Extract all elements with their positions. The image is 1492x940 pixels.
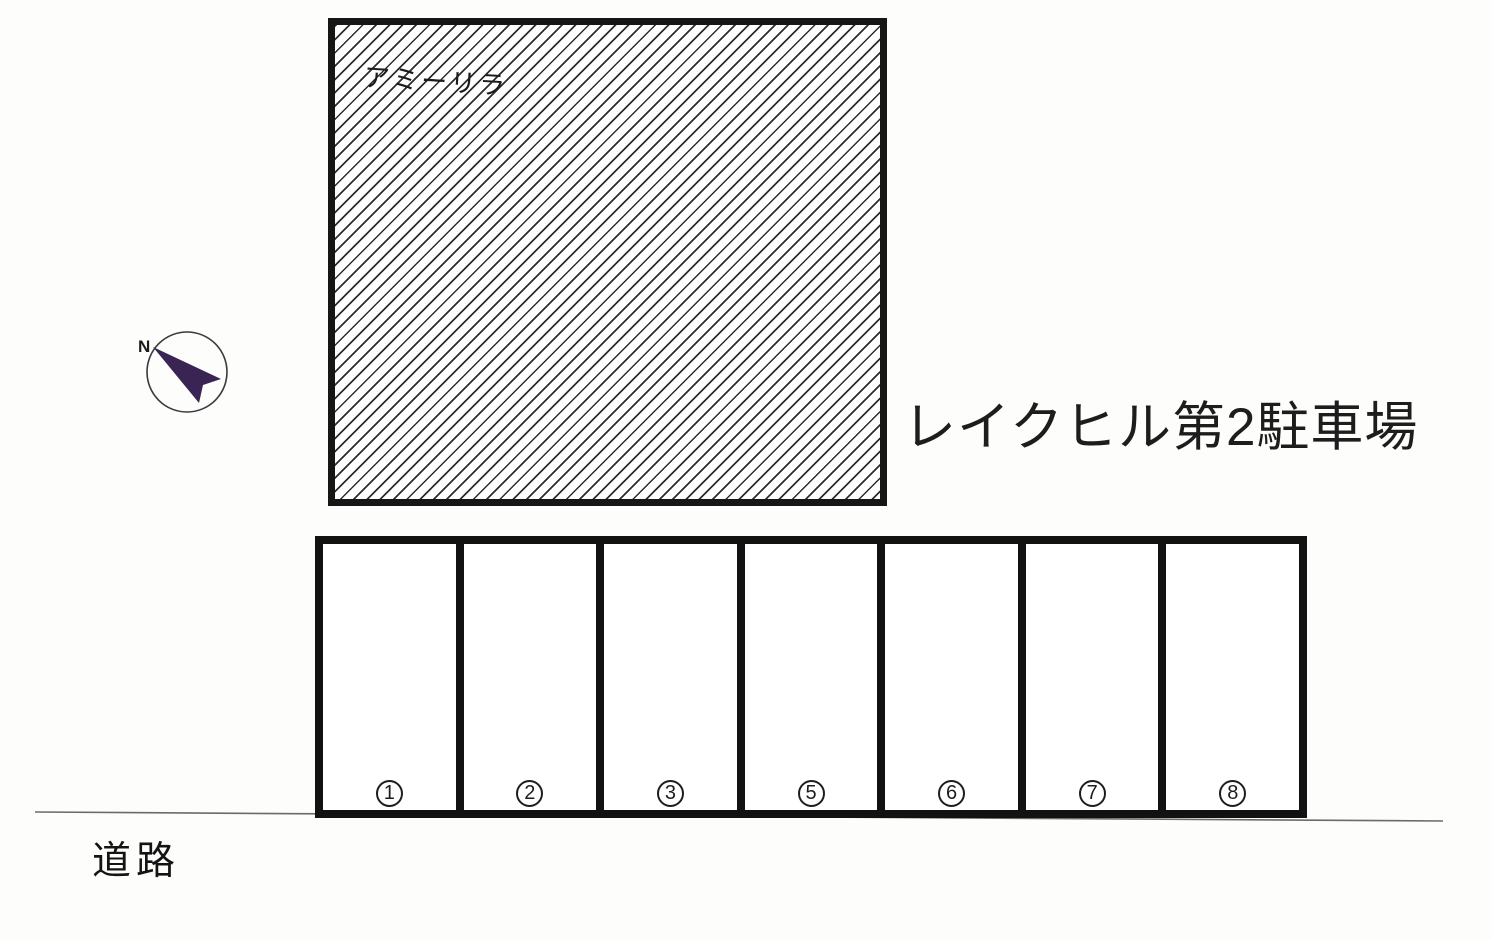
parking-map: アミーリラ N レイクヒル第2駐車場 1 2 3 5 6 7 8 道路 bbox=[0, 0, 1492, 940]
parking-space-2: 2 bbox=[464, 544, 597, 810]
space-number-badge: 2 bbox=[516, 780, 543, 807]
parking-row: 1 2 3 5 6 7 8 bbox=[315, 536, 1307, 818]
north-arrow-icon bbox=[153, 347, 221, 403]
compass-north-label: N bbox=[138, 337, 150, 356]
parking-space-7: 7 bbox=[1026, 544, 1159, 810]
space-number-badge: 5 bbox=[798, 780, 825, 807]
space-number-badge: 3 bbox=[657, 780, 684, 807]
parking-space-1: 1 bbox=[323, 544, 456, 810]
building-block: アミーリラ bbox=[328, 18, 887, 506]
parking-space-6: 6 bbox=[885, 544, 1018, 810]
parking-space-3: 3 bbox=[604, 544, 737, 810]
parking-space-8: 8 bbox=[1166, 544, 1299, 810]
space-number-badge: 7 bbox=[1079, 780, 1106, 807]
page-title: レイクヒル第2駐車場 bbox=[903, 385, 1463, 461]
north-arrow-compass: N bbox=[135, 328, 235, 420]
space-number-badge: 1 bbox=[376, 780, 403, 807]
building-label: アミーリラ bbox=[363, 57, 509, 103]
parking-space-5: 5 bbox=[745, 544, 878, 810]
space-number-badge: 6 bbox=[938, 780, 965, 807]
space-number-badge: 8 bbox=[1219, 780, 1246, 807]
road-label: 道路 bbox=[92, 830, 180, 886]
